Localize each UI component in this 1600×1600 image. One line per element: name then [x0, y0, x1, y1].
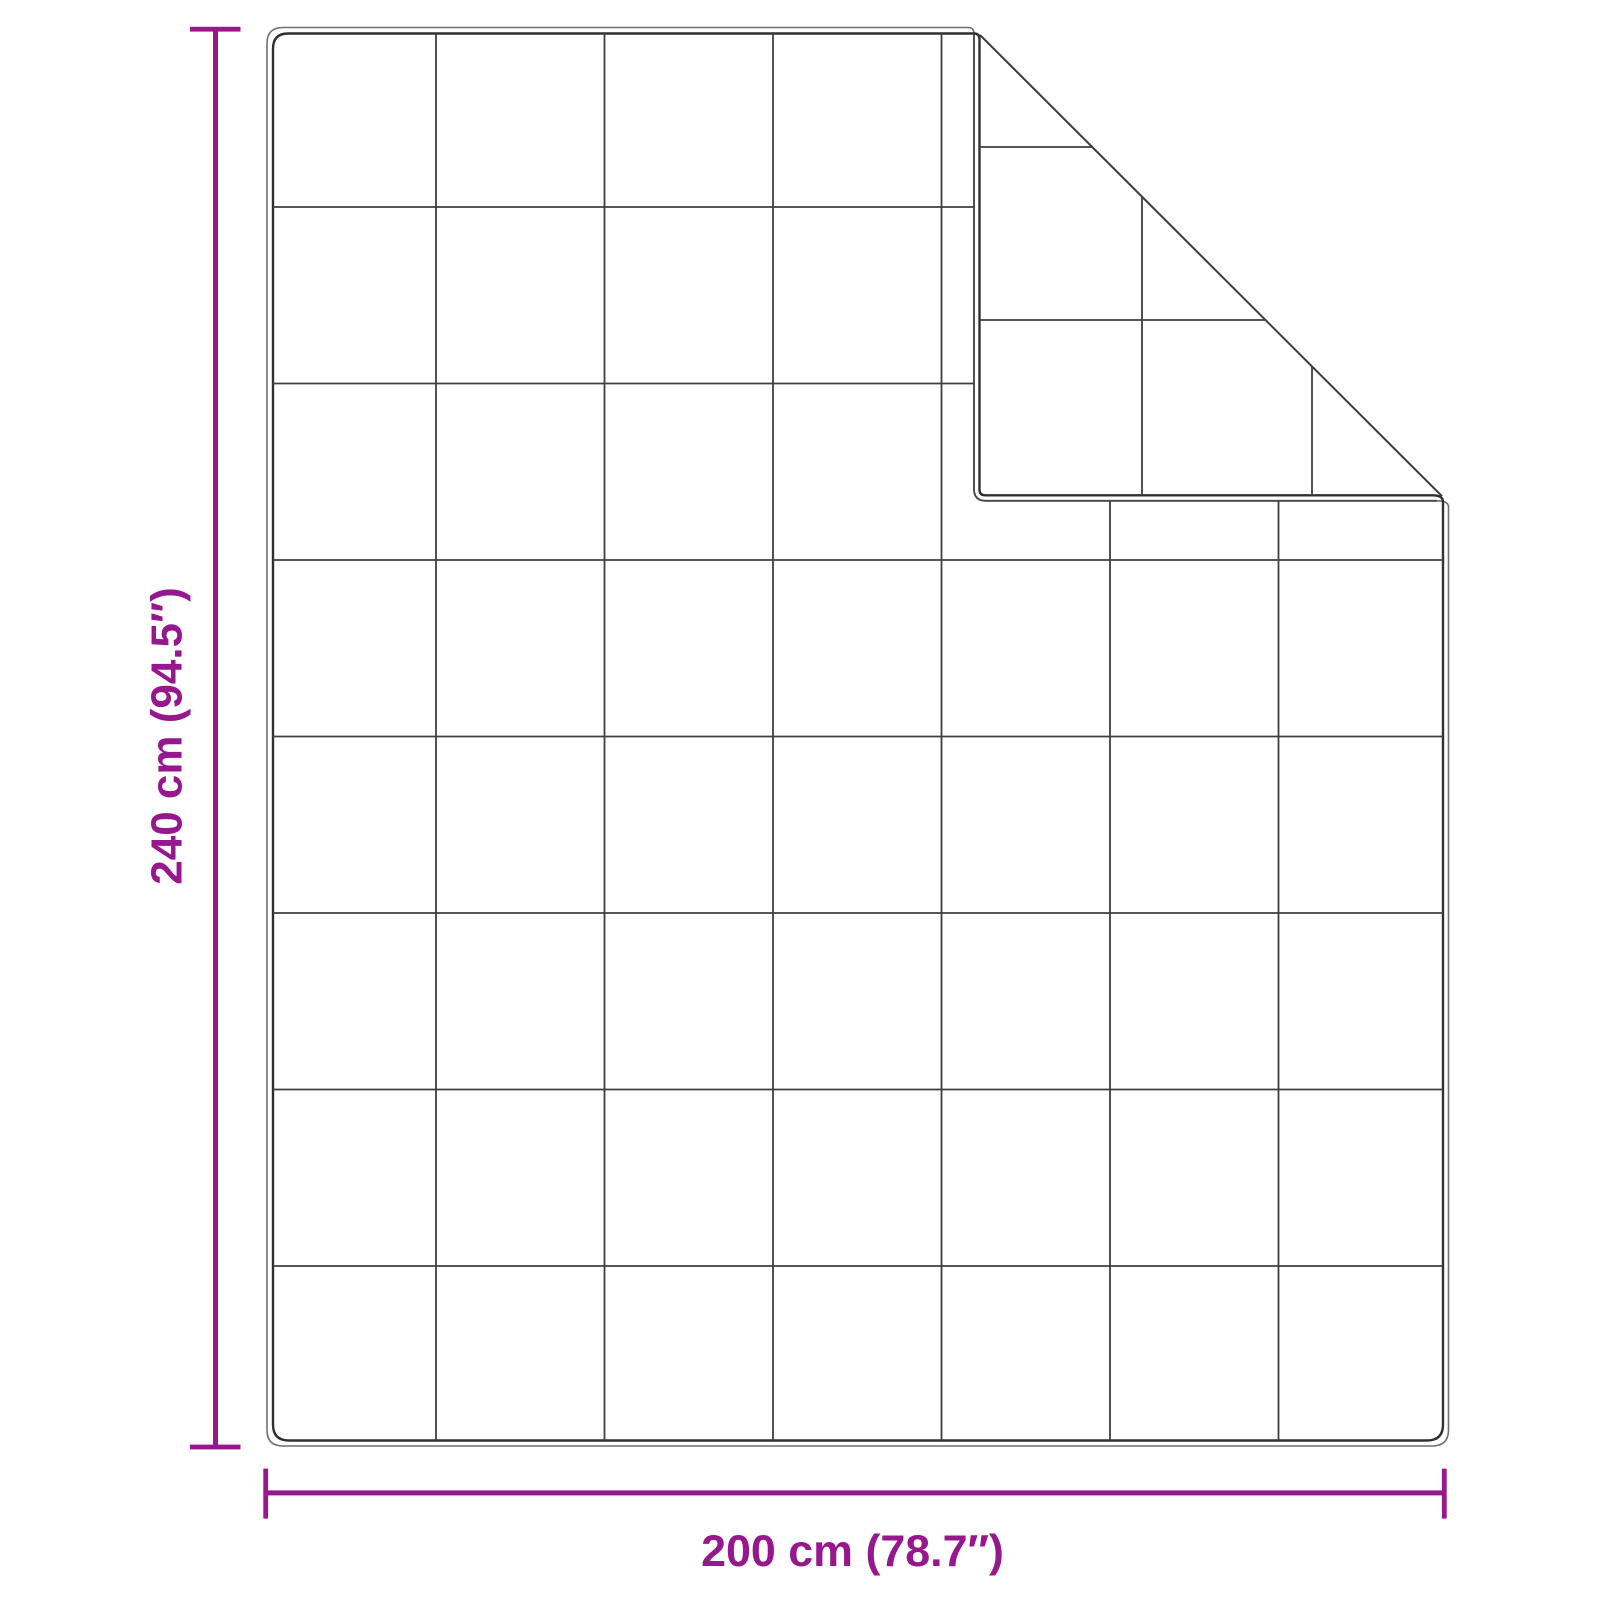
- svg-text:240 cm (94.5″): 240 cm (94.5″): [143, 587, 192, 884]
- svg-text:200 cm (78.7″): 200 cm (78.7″): [701, 1526, 1004, 1576]
